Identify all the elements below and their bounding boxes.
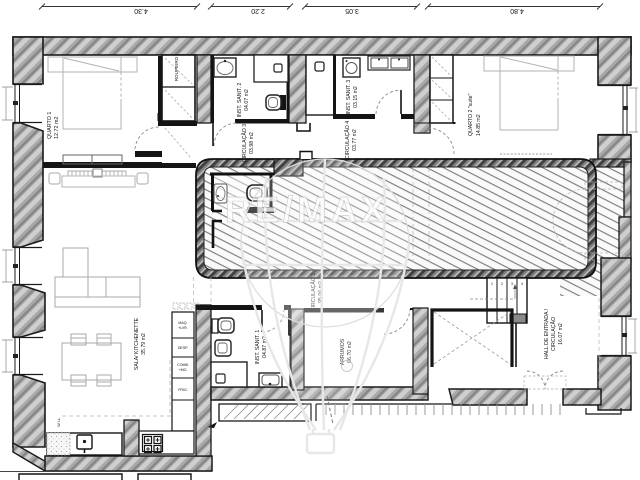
svg-text:QUARTO 2 "suite": QUARTO 2 "suite" xyxy=(468,93,474,136)
svg-text:2.20: 2.20 xyxy=(251,7,265,14)
svg-text:+LVR.: +LVR. xyxy=(178,326,188,330)
svg-text:CIRCULAÇÃO 3: CIRCULAÇÃO 3 xyxy=(241,124,248,162)
svg-text:INST. SANIT. 1: INST. SANIT. 1 xyxy=(255,330,261,365)
svg-text:COMB.: COMB. xyxy=(177,363,189,367)
svg-text:W.I.L.: W.I.L. xyxy=(56,417,61,427)
svg-text:16.07 m2: 16.07 m2 xyxy=(558,323,564,345)
svg-text:QUARTO 1: QUARTO 1 xyxy=(47,112,53,139)
svg-text:MAQ.: MAQ. xyxy=(178,321,187,325)
svg-text:ROUPEIRO: ROUPEIRO xyxy=(174,56,179,81)
svg-text:CIRCULAÇÃO 4: CIRCULAÇÃO 4 xyxy=(344,121,351,159)
svg-text:04.07 m2: 04.07 m2 xyxy=(244,89,250,111)
svg-text:FRIG.: FRIG. xyxy=(178,388,188,392)
svg-text:4.80: 4.80 xyxy=(510,7,524,14)
svg-text:35.79 m2: 35.79 m2 xyxy=(141,333,147,355)
svg-text:INST. SANIT. 2: INST. SANIT. 2 xyxy=(237,83,243,118)
svg-text:RE/MAX: RE/MAX xyxy=(225,189,389,230)
svg-text:14.85 m2: 14.85 m2 xyxy=(476,114,482,136)
svg-text:1: 1 xyxy=(491,282,493,286)
svg-text:03.98 m2: 03.98 m2 xyxy=(249,132,255,154)
svg-text:4: 4 xyxy=(521,282,523,286)
svg-text:12.72 m2: 12.72 m2 xyxy=(54,117,60,139)
svg-text:03.77 m2: 03.77 m2 xyxy=(352,129,358,151)
svg-text:DESP.: DESP. xyxy=(178,346,188,350)
svg-text:03.15 m2: 03.15 m2 xyxy=(353,86,359,108)
svg-text:CIRCULAÇÃO: CIRCULAÇÃO xyxy=(550,317,557,351)
svg-text:2: 2 xyxy=(501,282,503,286)
svg-text:INST. SANIT. 3: INST. SANIT. 3 xyxy=(346,80,352,115)
svg-text:SALA/ KITCHENETTE: SALA/ KITCHENETTE xyxy=(134,317,140,370)
svg-text:3.05: 3.05 xyxy=(345,7,359,14)
svg-text:+MO.: +MO. xyxy=(179,368,188,372)
svg-text:HALL DE ENTRADA /: HALL DE ENTRADA / xyxy=(544,308,550,359)
svg-text:3: 3 xyxy=(511,282,513,286)
svg-text:4.30: 4.30 xyxy=(134,7,148,14)
